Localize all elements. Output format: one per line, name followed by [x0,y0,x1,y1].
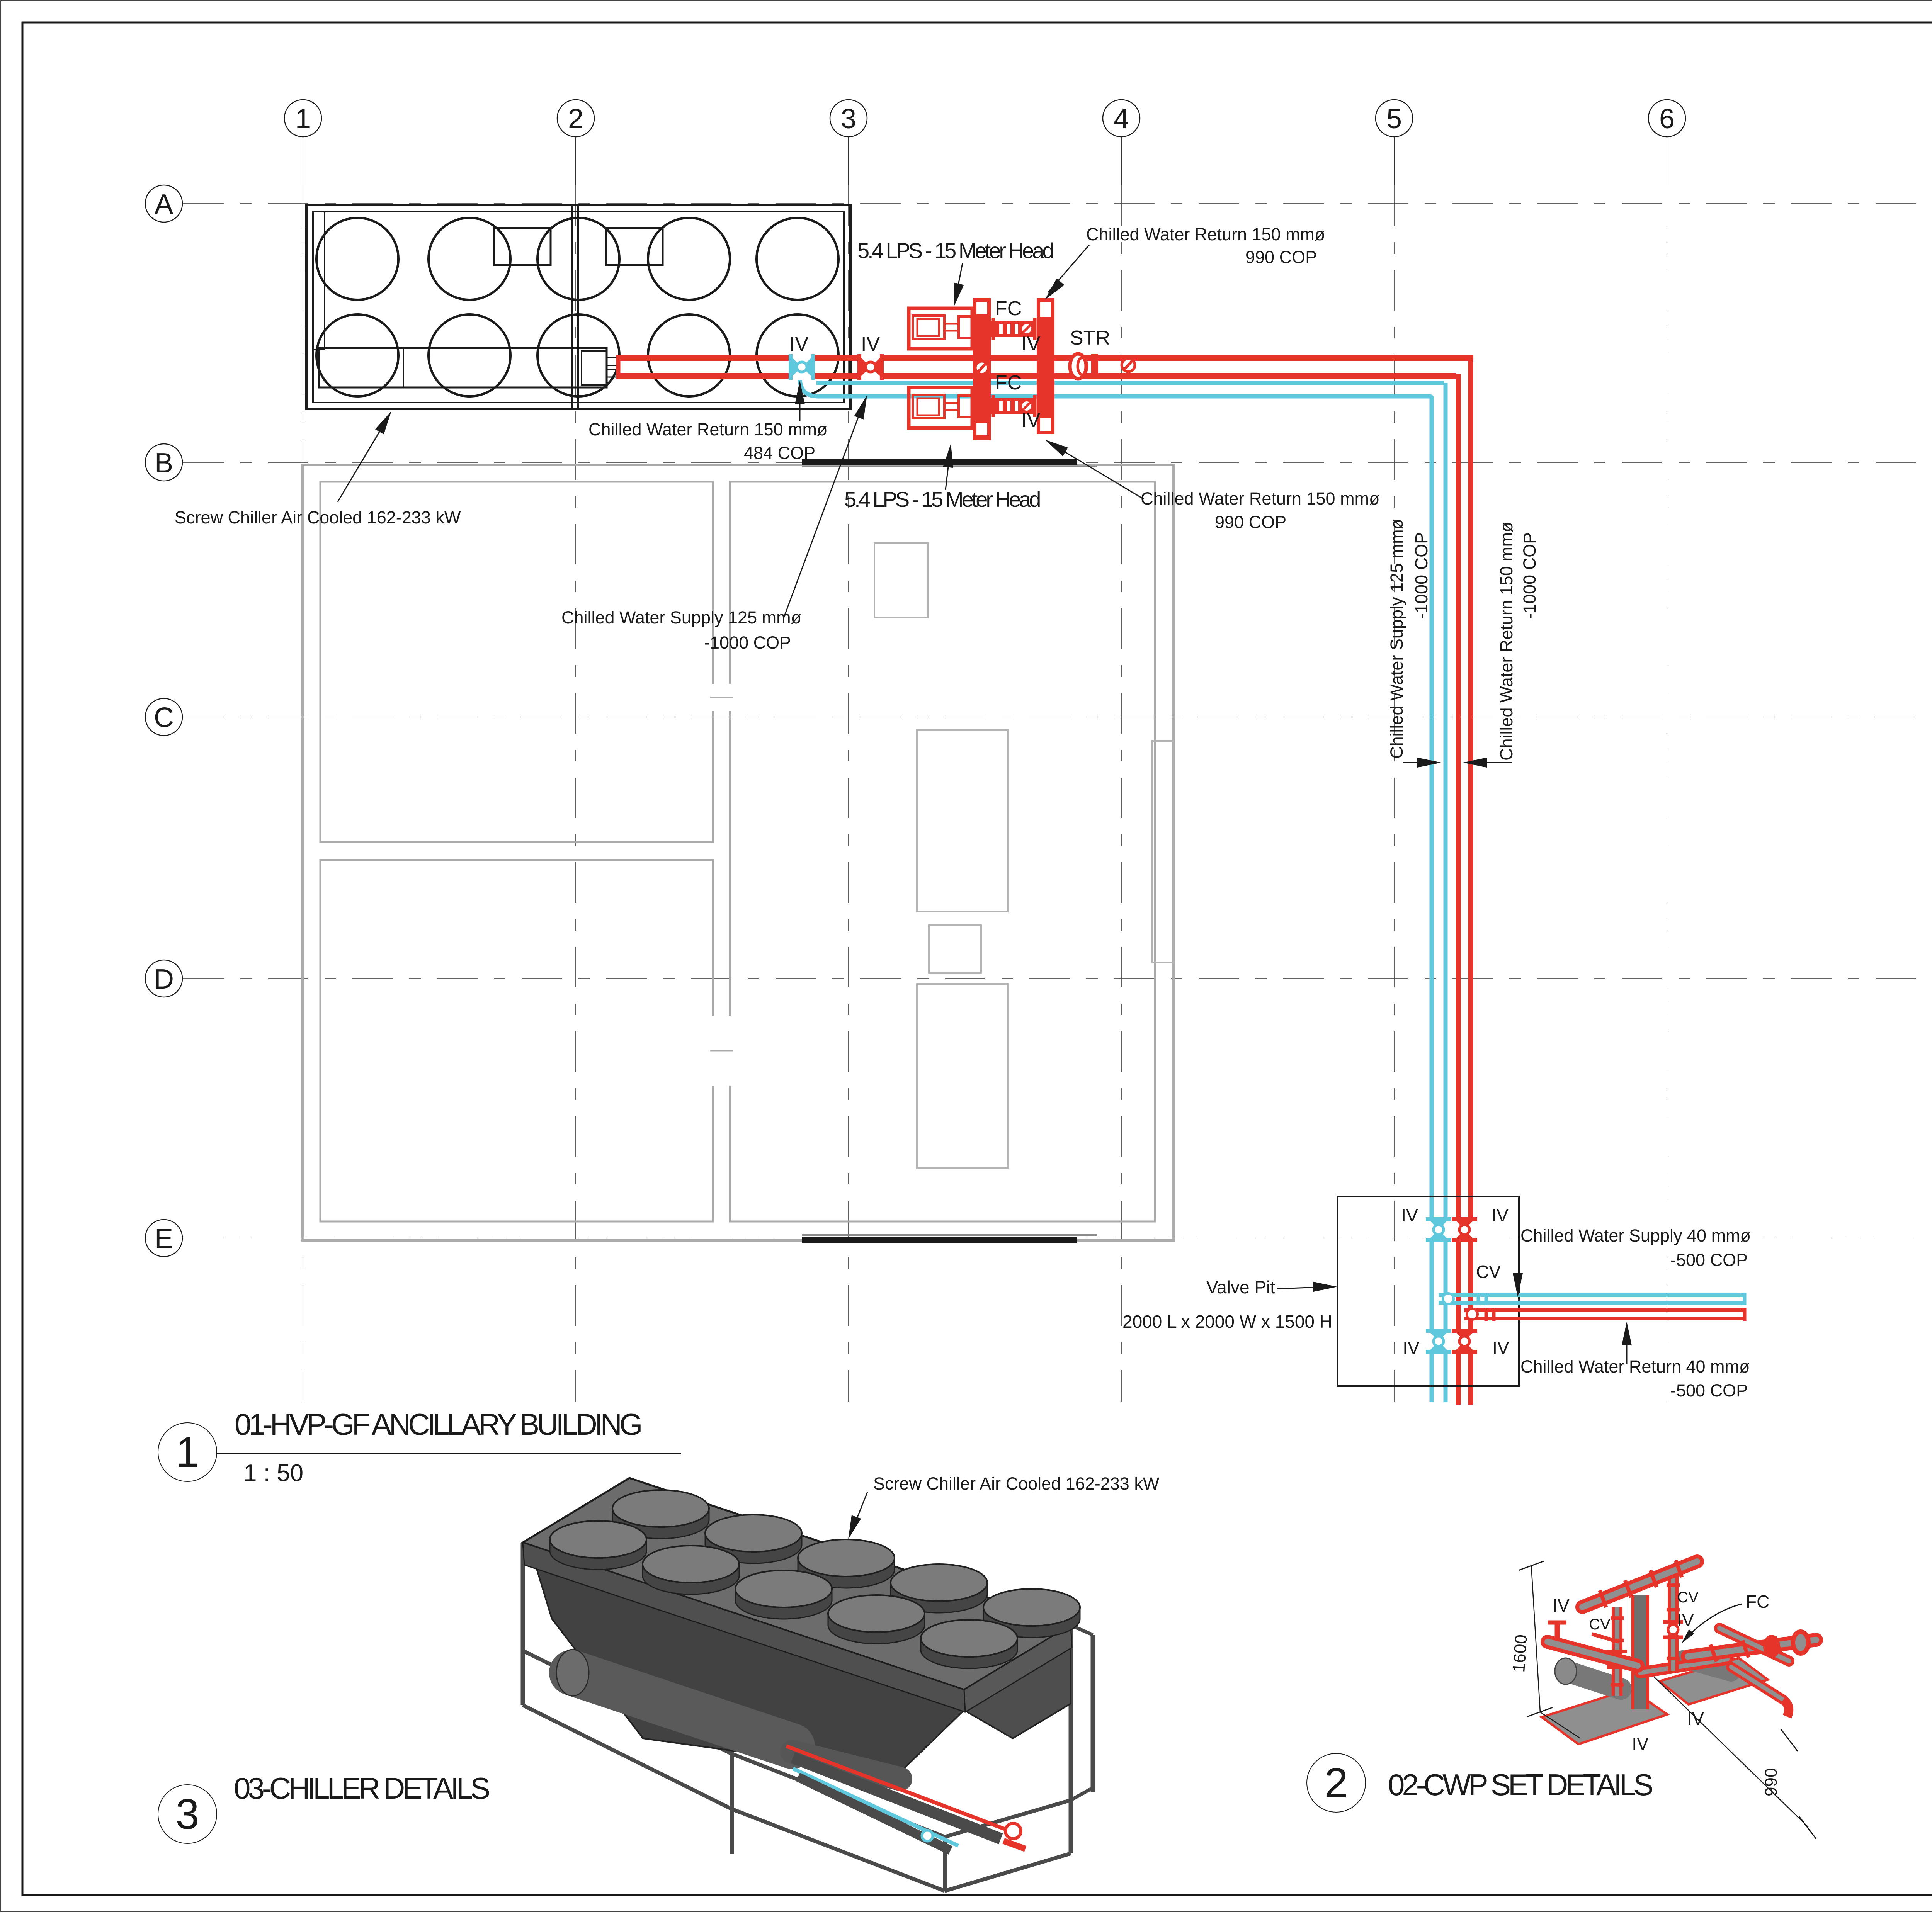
svg-text:IV: IV [1021,333,1040,355]
svg-text:FC: FC [1746,1592,1769,1612]
svg-text:1: 1 [175,1429,199,1476]
svg-text:4: 4 [1114,104,1129,134]
svg-text:IV: IV [789,333,808,355]
svg-text:3: 3 [175,1791,199,1838]
svg-text:B: B [155,448,173,479]
svg-text:484 COP: 484 COP [744,443,815,463]
svg-text:D: D [154,964,174,995]
svg-text:IV: IV [1632,1734,1649,1754]
svg-text:IV: IV [1492,1205,1509,1225]
svg-text:A: A [155,189,173,220]
svg-text:IV: IV [1021,409,1040,432]
svg-text:Screw Chiller Air Cooled 162-2: Screw Chiller Air Cooled 162-233 kW [873,1474,1160,1493]
svg-text:2: 2 [568,104,583,134]
svg-text:IV: IV [1687,1709,1704,1729]
svg-text:3: 3 [841,104,856,134]
svg-text:CV: CV [1589,1616,1611,1633]
svg-text:990 COP: 990 COP [1215,512,1286,532]
svg-text:2: 2 [1324,1759,1348,1807]
svg-text:Chilled Water Return 150 mmø: Chilled Water Return 150 mmø [588,420,828,439]
svg-text:-1000 COP: -1000 COP [1412,532,1431,619]
svg-text:Chilled Water Return 150 mmø: Chilled Water Return 150 mmø [1497,522,1516,761]
svg-text:-1000 COP: -1000 COP [704,633,791,652]
svg-text:1 : 50: 1 : 50 [243,1460,303,1486]
svg-text:IV: IV [1677,1610,1694,1630]
svg-text:Chilled Water Supply 125 mmø: Chilled Water Supply 125 mmø [1387,519,1406,759]
svg-text:6: 6 [1659,104,1675,134]
svg-text:5: 5 [1386,104,1402,134]
svg-text:CV: CV [1677,1589,1699,1606]
svg-text:Chilled Water Return 40 mmø: Chilled Water Return 40 mmø [1520,1357,1750,1376]
svg-text:CV: CV [1476,1262,1501,1282]
svg-text:FC: FC [995,372,1022,394]
svg-text:5.4 LPS - 15 Meter Head: 5.4 LPS - 15 Meter Head [844,487,1040,511]
svg-text:1: 1 [295,104,311,134]
svg-text:Chilled Water Supply 125 mmø: Chilled Water Supply 125 mmø [561,608,801,627]
svg-text:1600: 1600 [1509,1634,1531,1673]
svg-text:IV: IV [1403,1338,1420,1358]
svg-text:IV: IV [1492,1338,1509,1358]
svg-text:02-CWP SET DETAILS: 02-CWP SET DETAILS [1388,1768,1652,1802]
svg-text:990: 990 [1762,1768,1781,1796]
svg-text:5.4 LPS - 15 Meter Head: 5.4 LPS - 15 Meter Head [857,238,1053,263]
svg-text:-500 COP: -500 COP [1670,1381,1748,1400]
svg-text:IV: IV [1401,1205,1418,1225]
svg-text:IV: IV [1553,1595,1570,1616]
svg-text:Chilled Water Supply 40 mmø: Chilled Water Supply 40 mmø [1520,1226,1751,1245]
svg-text:990 COP: 990 COP [1245,247,1317,267]
svg-text:Chilled Water Return 150 mmø: Chilled Water Return 150 mmø [1086,224,1325,244]
svg-text:C: C [154,702,174,733]
svg-text:STR: STR [1070,327,1110,349]
svg-text:Screw Chiller Air Cooled 162-2: Screw Chiller Air Cooled 162-233 kW [175,508,461,527]
svg-text:03-CHILLER DETAILS: 03-CHILLER DETAILS [234,1771,489,1805]
svg-text:FC: FC [995,297,1022,320]
svg-text:01-HVP-GF ANCILLARY BUILDING: 01-HVP-GF ANCILLARY BUILDING [235,1407,641,1441]
svg-text:IV: IV [861,333,880,355]
svg-text:E: E [155,1223,173,1254]
svg-text:-500 COP: -500 COP [1670,1250,1748,1270]
svg-text:Valve Pit: Valve Pit [1206,1277,1275,1297]
svg-text:-1000 COP: -1000 COP [1520,532,1539,619]
svg-text:2000 L x 2000 W x 1500 H: 2000 L x 2000 W x 1500 H [1122,1312,1332,1332]
svg-text:Chilled Water Return 150 mmø: Chilled Water Return 150 mmø [1141,489,1380,508]
